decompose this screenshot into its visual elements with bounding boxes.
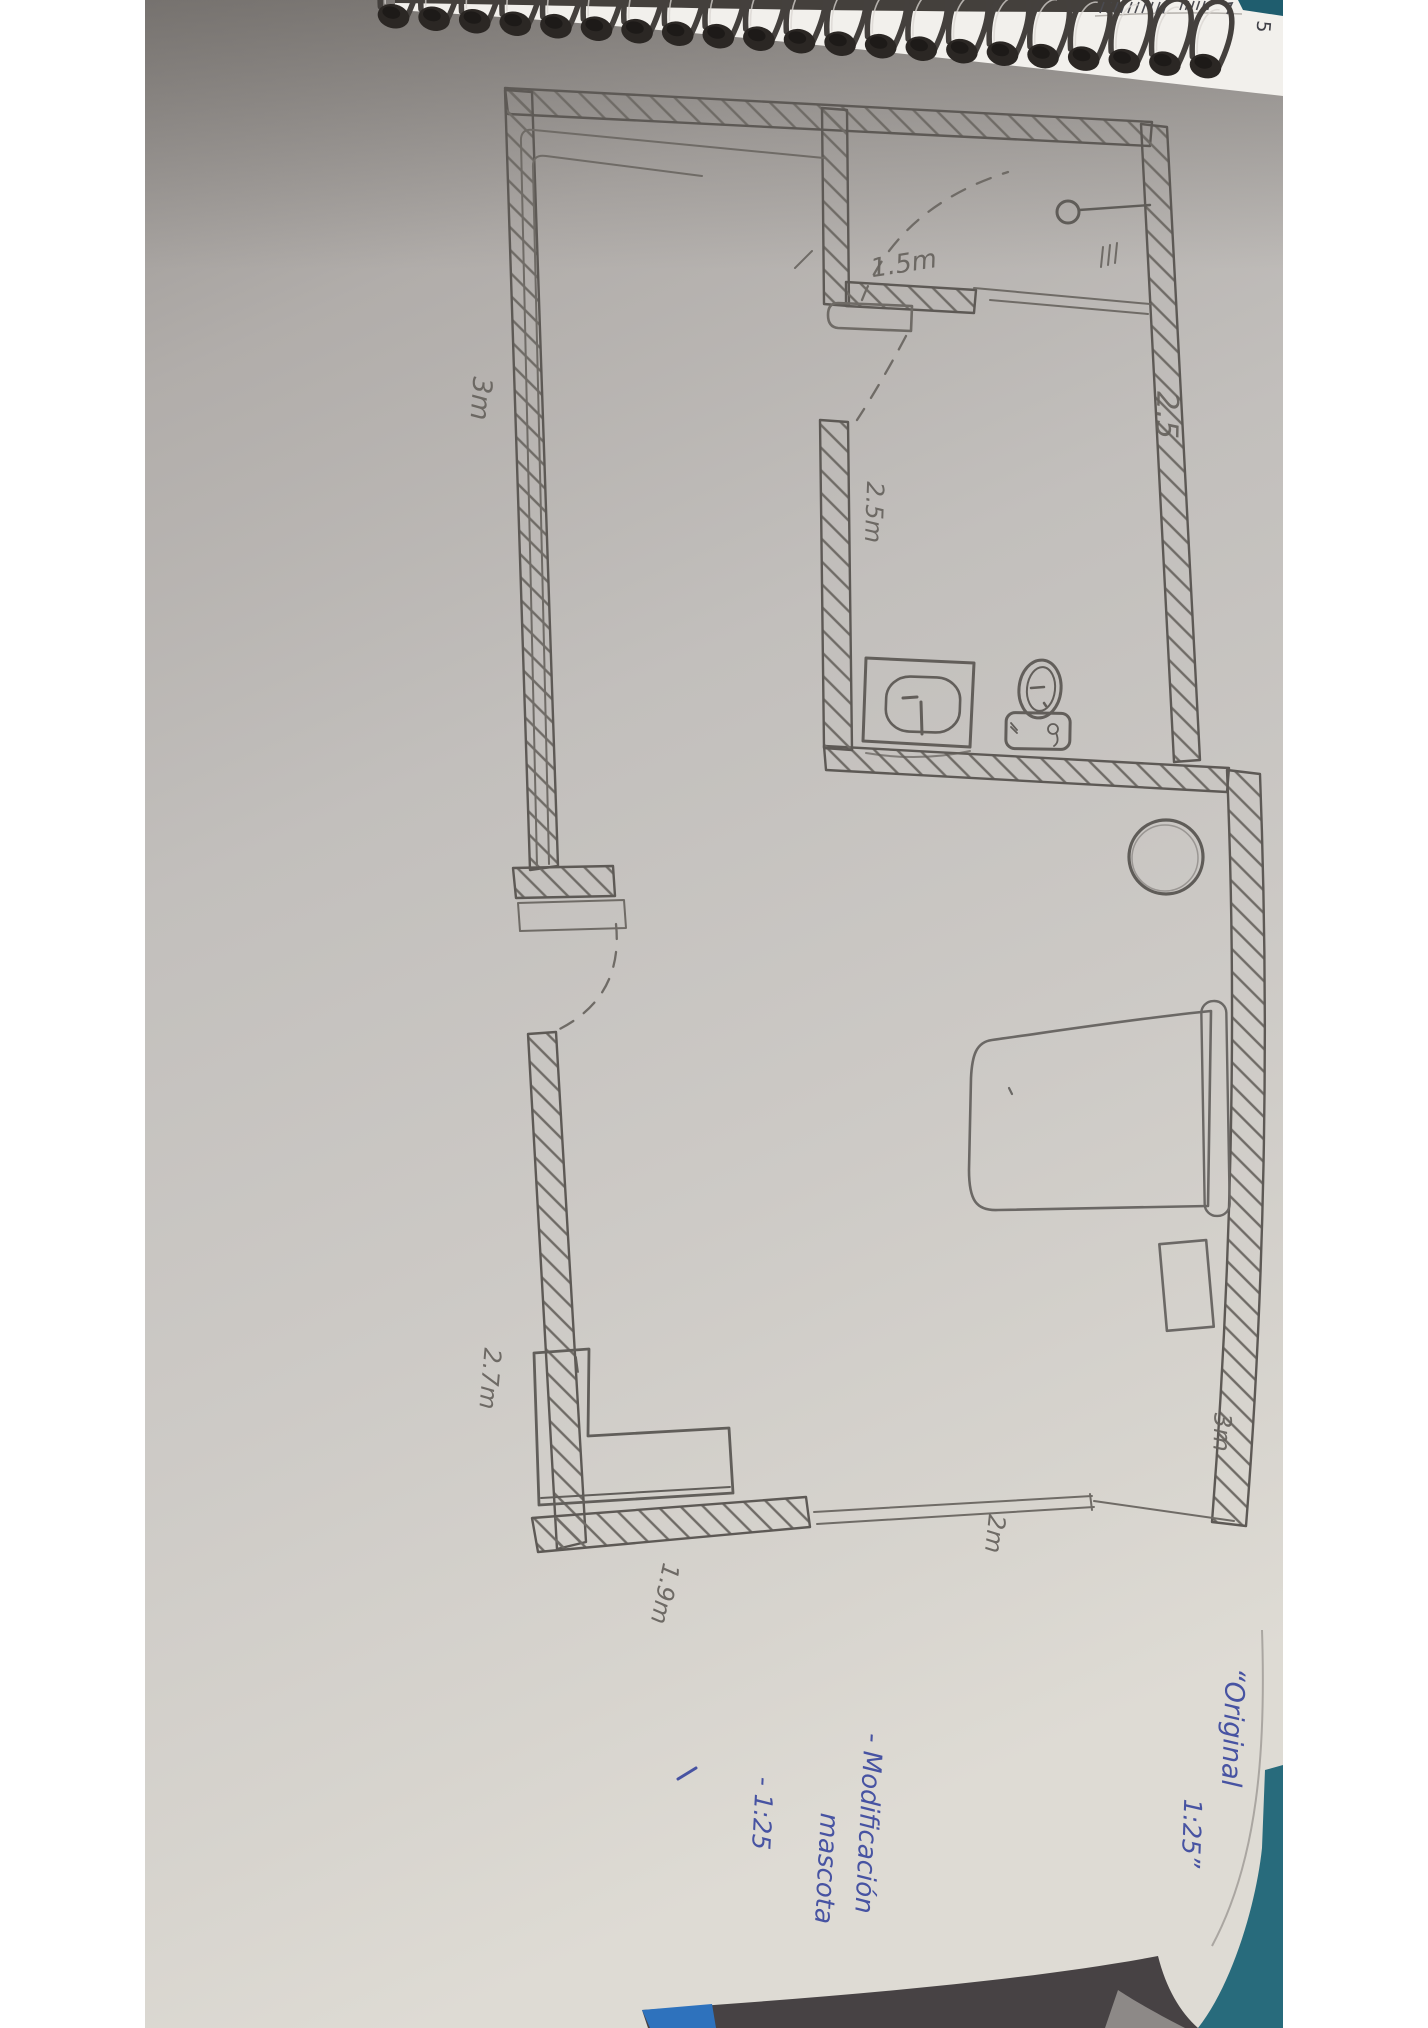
annotation-original-line1: “Original [1215,1667,1250,1788]
annotation-original-line2: 1:25” [1176,1798,1207,1869]
dim-lower-left-wall: 2.7m [473,1347,506,1411]
paper-background [145,0,1283,2028]
wall-left-end-cap [513,866,615,898]
dim-top-right-wall: 2.5 [1149,391,1185,439]
annotation-mod-line2: mascota [808,1812,844,1925]
dim-bottom-window: 2m [979,1513,1011,1554]
sink-tap [921,702,922,734]
sink-tap-dash [903,697,917,698]
photo-canvas: 5 [0,0,1428,2028]
wall-bathroom-left [820,420,852,750]
annotation-mod-line3: - 1:25 [746,1776,779,1851]
wall-closet-vertical [822,108,849,306]
toilet-dot [1044,703,1046,706]
toilet-dash [1031,687,1044,688]
dim-bathroom-wall: 2.5m [859,481,889,543]
notebook-page [145,0,1283,2028]
notebook-photo: 5 [0,0,1428,2028]
dim-right-wall: 3m [1207,1412,1236,1452]
ruler-digit: 5 [1251,20,1274,34]
dim-left-wall: 3m [464,376,498,422]
